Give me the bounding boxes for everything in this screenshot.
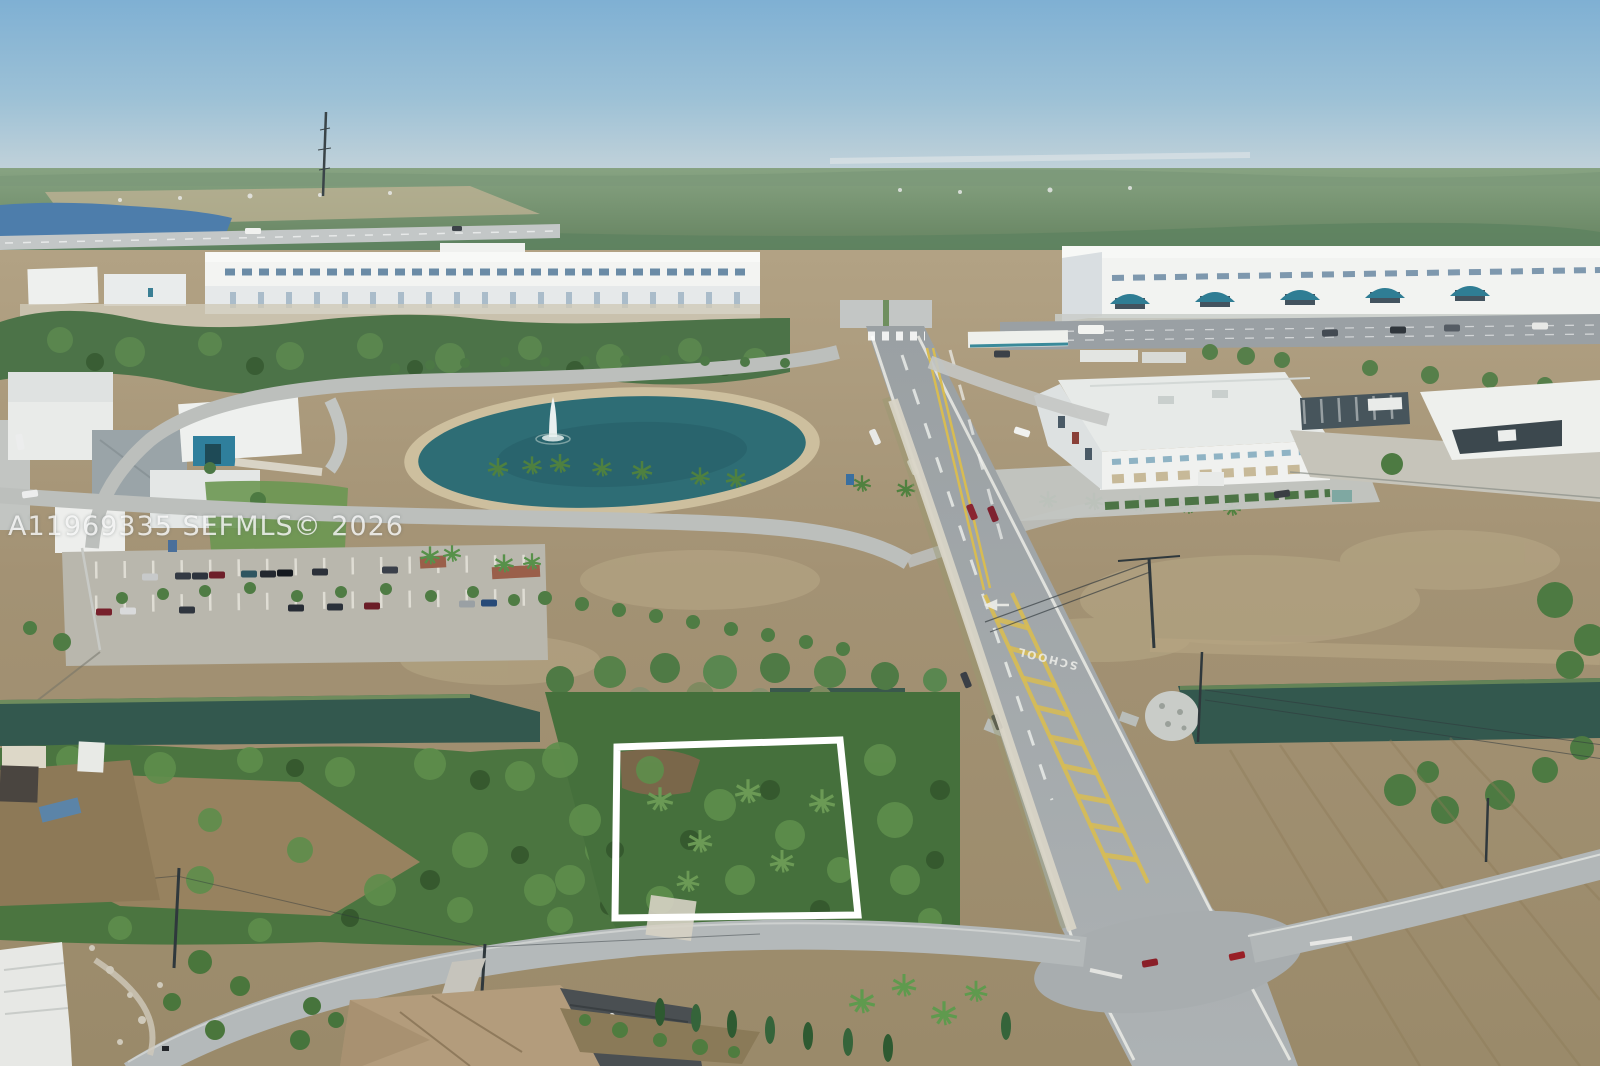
conifer-icon: [691, 1004, 701, 1032]
trailer: [1368, 397, 1403, 411]
white-house: [0, 942, 72, 1066]
school-arch-opening: [205, 444, 221, 464]
car-icon: [994, 351, 1010, 358]
car-icon: [1322, 329, 1338, 337]
plaza-building: [1080, 350, 1138, 362]
school-roof-north-shade: [8, 372, 113, 402]
storage-portico: [1198, 472, 1224, 486]
distant-car: [452, 226, 462, 231]
truck: [1078, 325, 1104, 334]
outbuilding-a: [27, 267, 98, 305]
road-sign-blue: [846, 474, 854, 485]
conifer-icon: [843, 1028, 853, 1056]
conifer-icon: [1001, 1012, 1011, 1040]
mls-watermark: A11969335 SEFMLS© 2026: [8, 511, 404, 542]
carport-awning: [2, 746, 46, 768]
conifer-icon: [803, 1022, 813, 1050]
wing-window: [1085, 448, 1092, 460]
car-icon: [1444, 325, 1460, 332]
dark-roof-structure: [0, 765, 39, 802]
sky: [0, 0, 1600, 180]
plaza-building: [1142, 352, 1186, 363]
riprap: [1145, 691, 1199, 741]
aerial-listing-photo: SCHOOL: [0, 0, 1600, 1066]
car-icon: [1532, 323, 1548, 330]
outbuilding-door: [148, 288, 153, 297]
roof-vent: [1212, 390, 1228, 398]
warehouse-left-roofline: [205, 252, 760, 262]
fountain-splash: [542, 435, 564, 442]
conifer-icon: [883, 1034, 893, 1062]
conifer-icon: [655, 998, 665, 1026]
warehouse-right-roofline: [1062, 246, 1600, 258]
wing-window: [1058, 416, 1065, 428]
teal-shed: [1332, 490, 1352, 502]
warehouse-right-endface: [1062, 252, 1102, 322]
wing-accent: [1072, 432, 1079, 444]
conifer-icon: [727, 1010, 737, 1038]
lot-vegetation: [542, 692, 960, 935]
warehouse-right: [1055, 246, 1600, 327]
outbuilding-b: [104, 274, 186, 306]
mailbox: [162, 1046, 169, 1051]
box-truck: [1498, 429, 1517, 441]
tree: [1381, 453, 1403, 475]
conifer-icon: [765, 1016, 775, 1044]
rv-trailer: [77, 741, 105, 772]
canopy-teal-fascia: [970, 344, 1068, 346]
roof-vent: [1158, 396, 1174, 404]
car-icon: [1390, 327, 1406, 334]
distant-truck: [245, 228, 261, 234]
